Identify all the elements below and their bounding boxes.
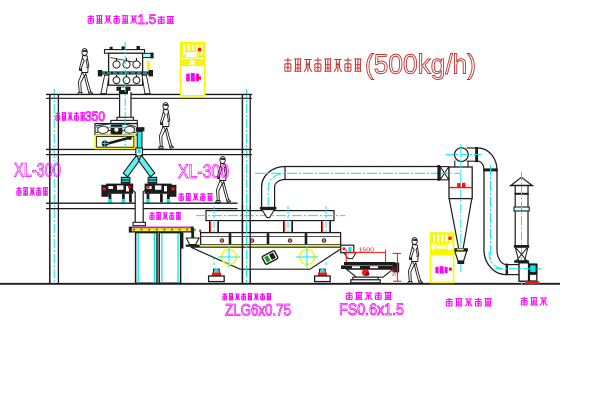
svg-text:(500kg/h): (500kg/h) (365, 49, 476, 80)
svg-text:540: 540 (392, 267, 398, 276)
svg-text:XL-300: XL-300 (14, 161, 61, 182)
svg-text:ZLG6x0.75: ZLG6x0.75 (225, 302, 291, 320)
svg-text:350: 350 (85, 109, 105, 124)
svg-text:1500: 1500 (359, 248, 375, 254)
svg-text:FS0.6x1.5: FS0.6x1.5 (339, 301, 404, 319)
svg-text:1.5: 1.5 (138, 12, 157, 27)
svg-text:XL-300: XL-300 (178, 162, 229, 183)
